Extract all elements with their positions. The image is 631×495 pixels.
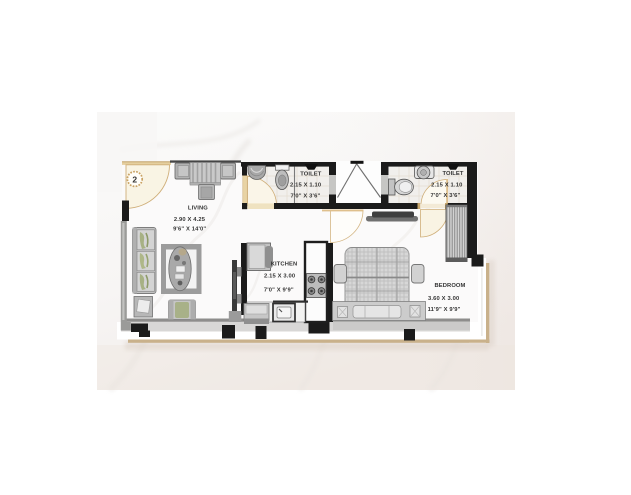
- svg-text:7'0" X 3'6": 7'0" X 3'6": [290, 193, 320, 199]
- svg-text:7'0" X 9'9": 7'0" X 9'9": [264, 288, 294, 294]
- svg-text:TOILET: TOILET: [442, 171, 463, 177]
- svg-text:BEDROOM: BEDROOM: [435, 283, 466, 289]
- svg-text:7'0" X 3'6": 7'0" X 3'6": [431, 193, 461, 199]
- svg-text:TOILET: TOILET: [300, 172, 321, 178]
- svg-text:11'9" X 9'9": 11'9" X 9'9": [428, 307, 461, 313]
- svg-text:2.90 X 4.25: 2.90 X 4.25: [174, 217, 206, 223]
- svg-text:9'6" X 14'0": 9'6" X 14'0": [173, 227, 206, 233]
- svg-text:LIVING: LIVING: [188, 206, 208, 212]
- svg-text:2.15 X 1.10: 2.15 X 1.10: [290, 182, 321, 188]
- svg-text:2.15 X 3.00: 2.15 X 3.00: [264, 274, 295, 280]
- svg-text:2.15 X 1.10: 2.15 X 1.10: [431, 182, 462, 188]
- svg-text:KITCHEN: KITCHEN: [271, 262, 297, 268]
- svg-text:2: 2: [132, 174, 137, 184]
- svg-text:3.60 X 3.00: 3.60 X 3.00: [428, 296, 459, 302]
